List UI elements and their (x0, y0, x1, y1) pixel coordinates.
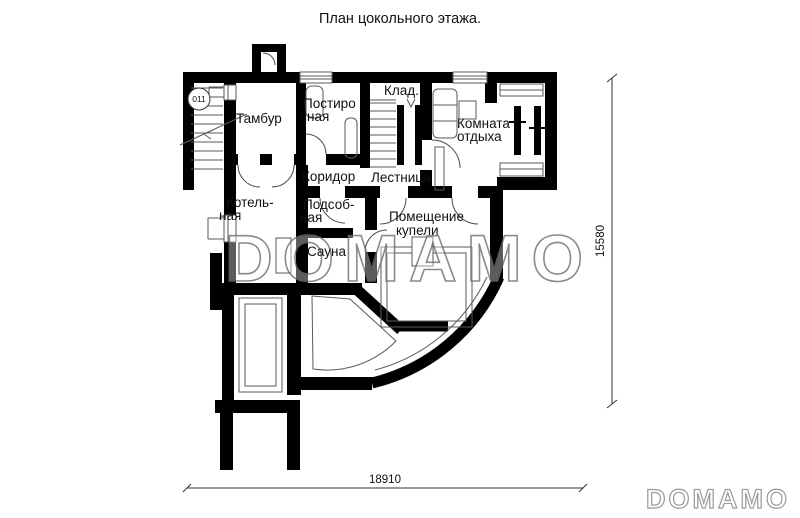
room-label-kotelnaya-2: ная (219, 208, 241, 223)
dimension-width-label: 18910 (369, 474, 401, 486)
internal-stairs (370, 100, 396, 167)
level-marker-label: 011 (192, 94, 206, 104)
door-postirochnaya (306, 134, 326, 154)
window-alcove-bottom (500, 163, 543, 176)
dimension-height: 15580 (595, 74, 617, 408)
room-label-kupel-2: купели (396, 223, 439, 238)
room-label-komnata-2: отдыха (457, 129, 502, 144)
room-label-postirochnaya-2: чная (300, 109, 329, 124)
window-top-1 (300, 72, 332, 83)
level-marker: 011 (188, 88, 210, 110)
room-label-kupel-1: Помещение (389, 209, 464, 224)
door-komnata (432, 140, 460, 168)
dimension-height-label: 15580 (595, 225, 607, 257)
page-title: План цокольного этажа. (319, 11, 481, 27)
radiator (435, 147, 444, 190)
window-top-2 (453, 72, 487, 83)
room-label-tambur: Тамбур (236, 111, 282, 126)
sofa (433, 89, 457, 138)
floor-plan-page: 011 15580 18910 DOMAMO DOMAMO План цокол… (0, 0, 800, 518)
window-left-1 (209, 85, 236, 100)
door-chimney (263, 53, 275, 65)
window-alcove-top (500, 84, 543, 96)
room-label-koridor: Коридор (302, 169, 355, 184)
equipment-bars (509, 106, 546, 155)
water-heater (345, 118, 357, 158)
room-label-klad: Клад. (384, 83, 419, 98)
room-label-lestnitsa: Лестница (371, 170, 431, 185)
klad-arrow (407, 99, 415, 107)
room-label-podsobnaya-2: ная (300, 210, 322, 225)
door-kotelnaya (238, 165, 260, 187)
door-tambur (272, 165, 294, 187)
watermark-corner-logo: DOMAMO (646, 484, 790, 514)
floor-plan-canvas: 011 15580 18910 DOMAMO DOMAMO План цокол… (0, 0, 800, 518)
terrace-block (239, 298, 282, 392)
room-label-sauna: Сауна (307, 244, 346, 259)
dimension-width: 18910 (183, 474, 587, 492)
